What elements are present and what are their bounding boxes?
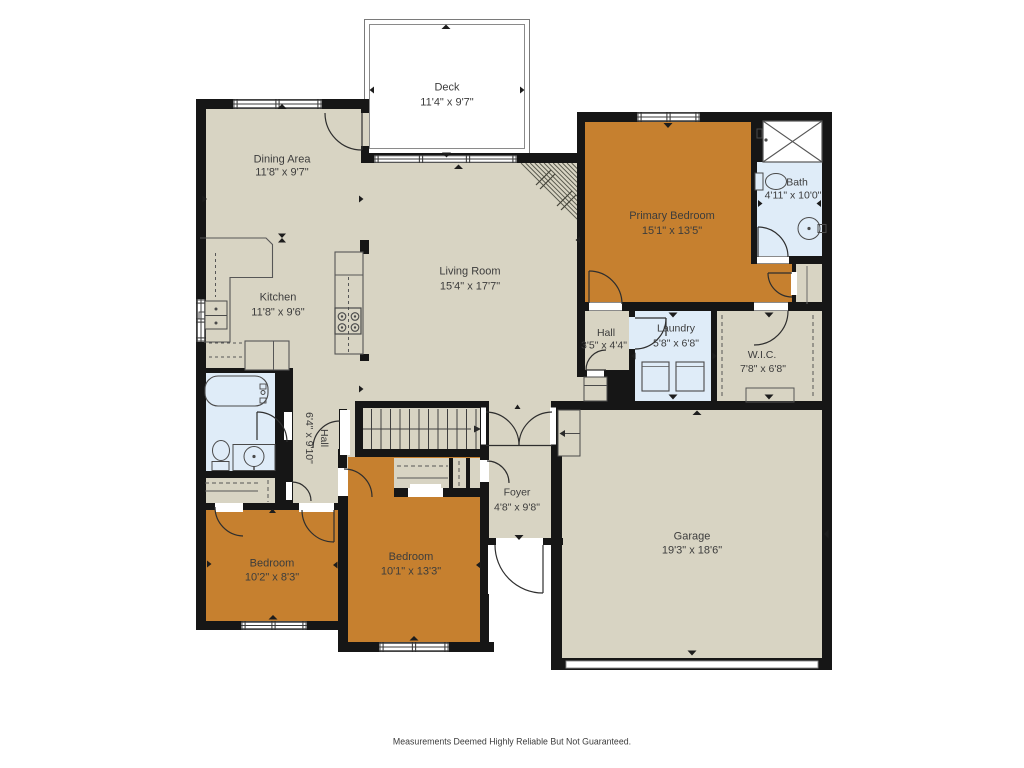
svg-text:7'8" x 6'8": 7'8" x 6'8" [740, 363, 786, 375]
svg-text:15'1" x 13'5": 15'1" x 13'5" [642, 225, 702, 237]
svg-text:Deck: Deck [434, 82, 460, 94]
svg-text:Hall: Hall [597, 327, 615, 339]
svg-text:Laundry: Laundry [657, 323, 696, 335]
svg-text:19'3" x 18'6": 19'3" x 18'6" [662, 545, 722, 557]
svg-text:6'4" x 9'10": 6'4" x 9'10" [303, 412, 315, 464]
svg-text:10'2" x 8'3": 10'2" x 8'3" [245, 572, 299, 584]
svg-text:4'8" x 9'8": 4'8" x 9'8" [494, 502, 540, 514]
svg-text:Bedroom: Bedroom [389, 551, 434, 563]
svg-text:Foyer: Foyer [504, 487, 531, 499]
svg-text:W.I.C.: W.I.C. [748, 349, 777, 361]
svg-text:Living Room: Living Room [439, 266, 500, 278]
svg-text:11'8" x 9'6": 11'8" x 9'6" [251, 307, 304, 319]
svg-text:Hall: Hall [318, 429, 330, 447]
svg-text:3'5" x 4'4": 3'5" x 4'4" [581, 340, 627, 352]
svg-text:10'1" x 13'3": 10'1" x 13'3" [381, 566, 441, 578]
svg-text:11'4" x 9'7": 11'4" x 9'7" [420, 97, 473, 109]
svg-text:Garage: Garage [674, 531, 711, 543]
svg-text:5'8" x 6'8": 5'8" x 6'8" [653, 338, 699, 350]
svg-text:Primary Bedroom: Primary Bedroom [629, 210, 715, 222]
svg-text:11'8" x 9'7": 11'8" x 9'7" [255, 167, 308, 179]
svg-text:Bedroom: Bedroom [250, 558, 295, 570]
svg-text:Dining Area: Dining Area [254, 154, 312, 166]
svg-text:Bath: Bath [786, 177, 808, 189]
svg-text:4'11" x 10'0": 4'11" x 10'0" [765, 190, 822, 202]
svg-text:Kitchen: Kitchen [260, 292, 297, 304]
svg-text:Measurements Deemed Highly Rel: Measurements Deemed Highly Reliable But … [393, 737, 631, 747]
svg-text:15'4" x 17'7": 15'4" x 17'7" [440, 281, 500, 293]
